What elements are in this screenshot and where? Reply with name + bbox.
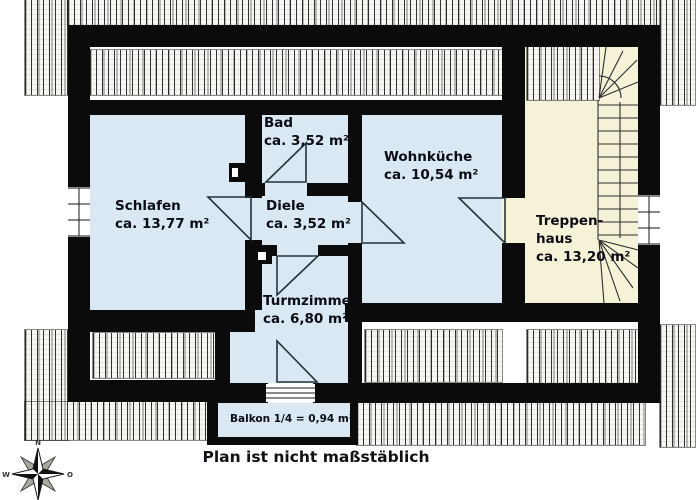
compass-east-label: O [67, 471, 73, 479]
wall-right-lower [638, 305, 660, 403]
chimney-flue [258, 252, 266, 260]
balcony-door-sill [266, 384, 315, 402]
room-area: ca. 10,54 m² [384, 166, 478, 184]
doorway-turmzimmer [277, 245, 318, 256]
room-name: haus [536, 230, 630, 248]
room-area: ca. 6,80 m² [263, 310, 358, 328]
compass-west-label: W [2, 471, 10, 479]
room-name: Bad [264, 114, 349, 132]
wall-schlafen-bottom [90, 310, 255, 332]
room-wohnkueche [362, 115, 502, 303]
wall-long-bottom [313, 383, 645, 403]
room-name: Turmzimmer [263, 292, 358, 310]
roof-hatch-top [68, 0, 660, 25]
room-area: ca. 13,20 m² [536, 248, 630, 266]
plan-footnote: Plan ist nicht maßstäblich [202, 448, 429, 466]
room-name: Wohnküche [384, 148, 478, 166]
wall-rooms-top [90, 100, 502, 115]
room-name: Diele [266, 197, 351, 215]
wall-balkon-bottom [207, 437, 355, 445]
roof-hatch-stair-top [527, 45, 599, 100]
room-label-wohnkueche: Wohnküche ca. 10,54 m² [384, 148, 478, 184]
doorway-treppenhaus [502, 198, 525, 243]
wall-bottom-left [68, 380, 218, 402]
wall-kitchen-bottom [345, 303, 660, 322]
room-label-turmzimmer: Turmzimmer ca. 6,80 m² [263, 292, 358, 328]
roof-hatch-bottom-mid [357, 403, 645, 445]
room-area: ca. 3,52 m² [264, 132, 349, 150]
roof-hatch-bottom-left [25, 402, 215, 440]
roof-hatch-top-right [660, 0, 695, 105]
roof-hatch-alcove-right [365, 330, 502, 382]
floor-plan: N W O Schlafen ca. 13,77 m² Bad ca. 3,52… [0, 0, 700, 500]
doorway-schlafen [245, 198, 262, 240]
wall-stair-left [502, 47, 525, 307]
roof-hatch-top-left [25, 0, 68, 95]
compass-north-label: N [35, 439, 41, 447]
compass-rose-icon: N W O [2, 439, 73, 500]
room-label-schlafen: Schlafen ca. 13,77 m² [115, 197, 209, 233]
room-label-balkon: Balkon 1/4 = 0,94 m² [230, 412, 353, 426]
wall-top [68, 25, 660, 47]
room-area: ca. 13,77 m² [115, 215, 209, 233]
room-label-treppenhaus: Treppen- haus ca. 13,20 m² [536, 212, 630, 266]
room-area: ca. 3,52 m² [266, 215, 351, 233]
room-label-bad: Bad ca. 3,52 m² [264, 114, 349, 150]
window-left [68, 187, 90, 237]
roof-hatch-alcove-stair [527, 330, 638, 388]
roof-hatch-alcove-left [93, 333, 215, 378]
room-name: Schlafen [115, 197, 209, 215]
wall-bad-right [348, 100, 362, 196]
room-label-diele: Diele ca. 3,52 m² [266, 197, 351, 233]
window-right [638, 195, 660, 245]
chimney-flue [232, 168, 238, 177]
wall-right-upper [638, 47, 660, 305]
room-name: Treppen- [536, 212, 630, 230]
roof-hatch-inner-top [90, 50, 502, 95]
doorway-bad [265, 183, 307, 196]
roof-hatch-right-lower [660, 325, 695, 447]
wall-turm-bottom-left [218, 383, 268, 403]
